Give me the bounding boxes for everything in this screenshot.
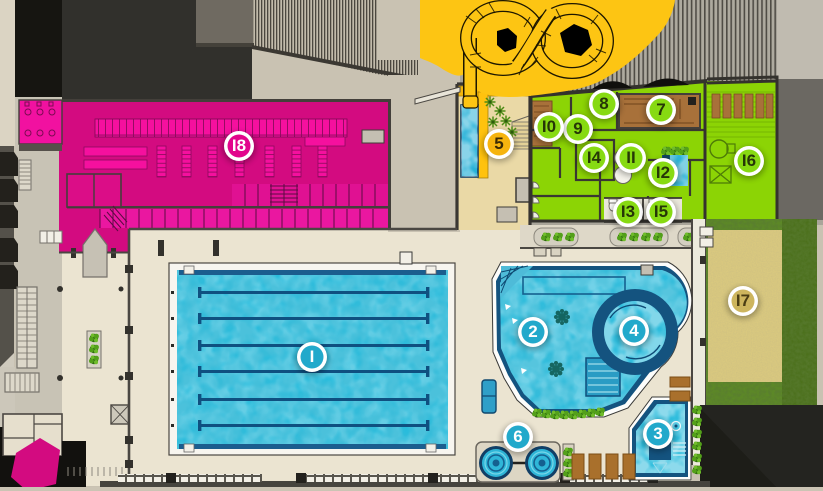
svg-text:5: 5 — [494, 134, 503, 153]
svg-text:I7: I7 — [736, 291, 750, 310]
svg-text:8: 8 — [599, 94, 608, 113]
svg-text:II: II — [626, 148, 635, 167]
svg-text:6: 6 — [513, 427, 522, 446]
svg-text:I4: I4 — [587, 148, 602, 167]
svg-text:I5: I5 — [654, 202, 668, 221]
svg-text:I: I — [310, 347, 315, 366]
svg-text:I8: I8 — [232, 136, 246, 155]
svg-text:I2: I2 — [656, 163, 670, 182]
svg-text:I6: I6 — [742, 151, 756, 170]
svg-text:I3: I3 — [621, 202, 635, 221]
svg-text:9: 9 — [573, 119, 582, 138]
svg-text:7: 7 — [656, 100, 665, 119]
svg-text:4: 4 — [629, 321, 639, 340]
svg-text:I0: I0 — [542, 117, 556, 136]
svg-text:3: 3 — [653, 424, 662, 443]
svg-text:2: 2 — [528, 322, 537, 341]
